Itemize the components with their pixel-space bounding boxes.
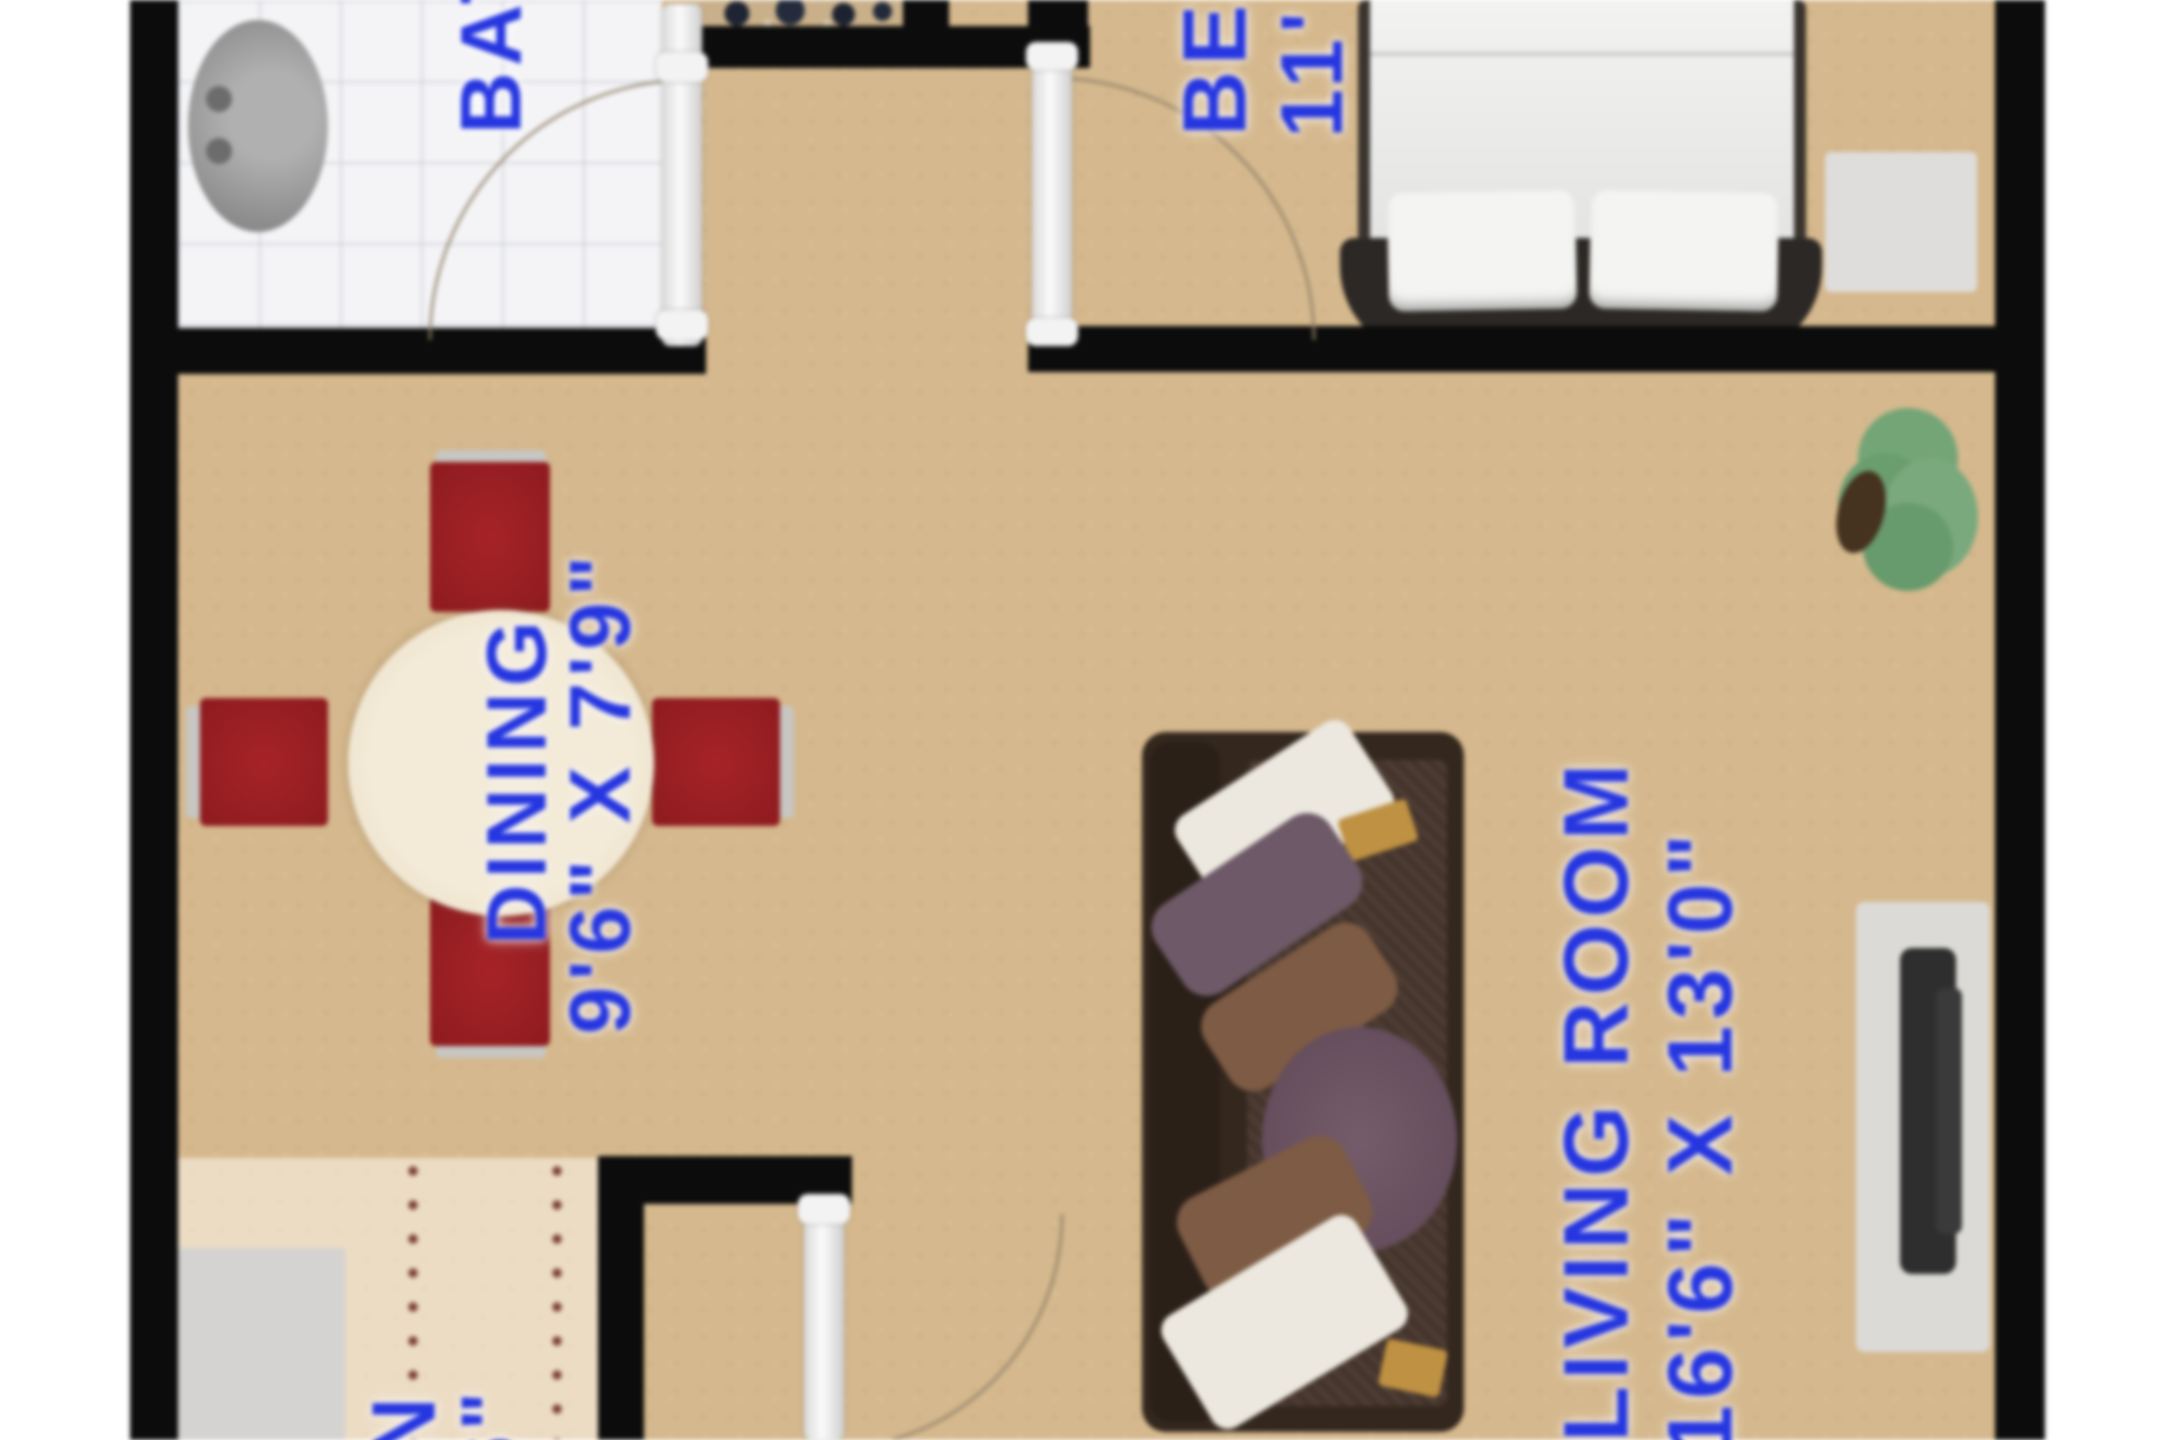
bedroom-door-jamb-bottom: [1026, 318, 1078, 346]
entry-door-arc: [892, 1214, 1062, 1440]
living-room-label: LIVING ROOM: [1545, 758, 1650, 1440]
kitchen-dims: 6": [444, 1386, 538, 1440]
bedroom-door-jamb-top: [1026, 42, 1078, 70]
bath-label: BATH: [443, 0, 542, 134]
kitchen-label: KITCHEN: [354, 1391, 457, 1440]
door-swing-arcs: [0, 0, 2160, 1440]
bathroom-door-jamb-top: [656, 52, 708, 82]
dining-dims: 9'6" X 7'9": [552, 550, 651, 1035]
entry-door-leaf: [804, 1202, 844, 1440]
floor-plan: BATH BEDROOM 11' DINING 9'6" X 7'9" LIVI…: [0, 0, 2160, 1440]
living-room-dims: 16'6" X 13'0": [1649, 828, 1754, 1440]
bedroom-door-leaf: [1032, 52, 1072, 344]
floor-plan-drawing: BATH BEDROOM 11' DINING 9'6" X 7'9" LIVI…: [0, 0, 2160, 1440]
bathroom-door-jamb-bottom: [656, 310, 708, 340]
bedroom-label: BEDROOM: [1165, 0, 1268, 136]
page-margin-left: [0, 0, 130, 1440]
entry-door-jamb-top: [798, 1194, 850, 1224]
page-margin-right: [2045, 0, 2160, 1440]
bedroom-dims: 11': [1261, 6, 1363, 138]
